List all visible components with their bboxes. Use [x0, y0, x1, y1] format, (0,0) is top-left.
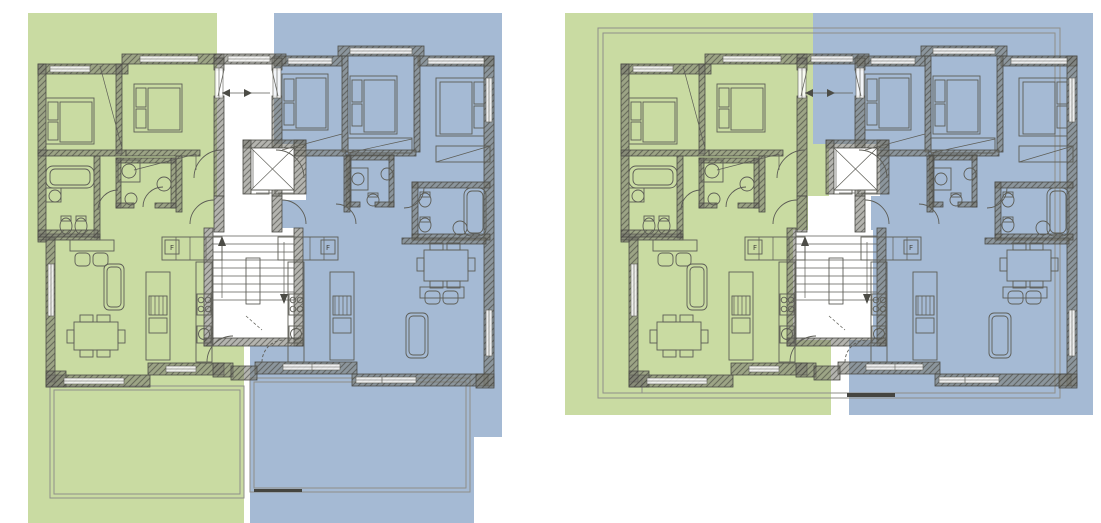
floor-plan-right: FF	[565, 13, 1093, 415]
wall-segment	[997, 56, 1003, 152]
fridge-label: F	[909, 244, 913, 252]
wall-segment	[925, 56, 931, 152]
wall-segment	[412, 182, 490, 188]
core-cabin	[246, 258, 260, 304]
railing-segment	[254, 489, 302, 492]
wall-segment	[796, 363, 816, 377]
wall-segment	[927, 156, 933, 212]
wall-segment	[116, 158, 176, 163]
arrow-marker	[863, 294, 871, 304]
wall-segment	[995, 182, 1001, 240]
wall-segment	[759, 156, 765, 212]
furniture	[251, 190, 269, 194]
wall-segment	[176, 156, 182, 212]
wall-segment	[116, 203, 134, 208]
wall-segment	[389, 155, 394, 207]
wall-segment	[342, 56, 348, 152]
wall-segment	[699, 203, 717, 208]
wall-segment	[677, 156, 683, 238]
arrow-marker	[244, 89, 252, 97]
wall-segment	[699, 158, 704, 208]
wall-segment	[699, 64, 705, 154]
wall-segment	[213, 363, 233, 377]
wall-segment	[797, 96, 807, 196]
fridge-label: F	[170, 244, 174, 252]
wall-segment	[699, 158, 759, 163]
wall-segment	[46, 371, 66, 387]
wall-segment	[402, 238, 486, 244]
wall-segment	[344, 156, 350, 212]
wall-segment	[995, 182, 1073, 188]
arrow-marker	[218, 236, 226, 246]
wall-segment	[629, 371, 649, 387]
wall-segment	[94, 156, 100, 238]
wall-segment	[116, 158, 121, 208]
wall-segment	[272, 196, 282, 232]
core-cabin	[829, 258, 843, 304]
wall-segment	[171, 158, 176, 208]
wall-segment	[38, 150, 126, 156]
wall-segment	[985, 238, 1069, 244]
wall-segment	[243, 140, 251, 194]
wall-segment	[126, 150, 200, 156]
wall-segment	[814, 366, 840, 380]
wall-segment	[826, 140, 834, 194]
wall-segment	[346, 155, 394, 160]
floor-plans-svg: FFFF	[0, 0, 1101, 523]
stair-break-line	[829, 316, 845, 330]
wall-segment	[476, 374, 494, 388]
floor-plans-page: FFFF	[0, 0, 1101, 523]
fridge-label: F	[753, 244, 757, 252]
stair-break-line	[246, 316, 262, 330]
railing-segment	[847, 393, 895, 397]
wall-segment	[855, 196, 865, 232]
wall-segment	[414, 56, 420, 152]
wall-segment	[412, 182, 418, 240]
wall-segment	[116, 64, 122, 154]
wall-segment	[155, 203, 176, 208]
fridge-label: F	[326, 244, 330, 252]
wall-segment	[709, 150, 783, 156]
wall-segment	[797, 196, 807, 232]
wall-segment	[214, 96, 224, 196]
wall-segment	[929, 155, 977, 160]
wall-segment	[877, 140, 889, 194]
wall-segment	[214, 196, 224, 232]
wall-segment	[754, 158, 759, 208]
wall-segment	[621, 150, 709, 156]
arrow-marker	[280, 294, 288, 304]
arrow-marker	[801, 236, 809, 246]
wall-segment	[231, 366, 257, 380]
wall-segment	[972, 155, 977, 207]
wall-segment	[294, 140, 306, 194]
floor-plan-left: FF	[28, 13, 502, 523]
furniture	[834, 190, 852, 194]
wall-segment	[1059, 374, 1077, 388]
wall-segment	[738, 203, 759, 208]
